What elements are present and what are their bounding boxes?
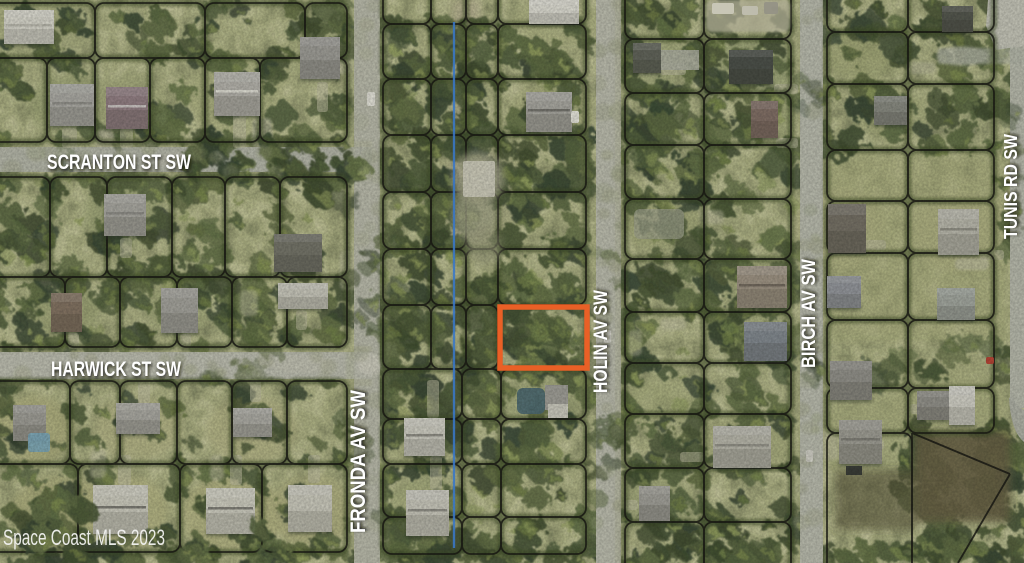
svg-text:HOLIN AV SW: HOLIN AV SW: [591, 290, 612, 393]
svg-text:Space Coast MLS 2023: Space Coast MLS 2023: [3, 525, 165, 550]
svg-text:BIRCH AV SW: BIRCH AV SW: [799, 259, 820, 368]
svg-text:HARWICK ST SW: HARWICK ST SW: [51, 358, 181, 381]
svg-text:TUNIS RD SW: TUNIS RD SW: [1001, 134, 1021, 239]
svg-text:FRONDA AV SW: FRONDA AV SW: [347, 390, 370, 533]
svg-text:SCRANTON ST SW: SCRANTON ST SW: [47, 151, 191, 174]
